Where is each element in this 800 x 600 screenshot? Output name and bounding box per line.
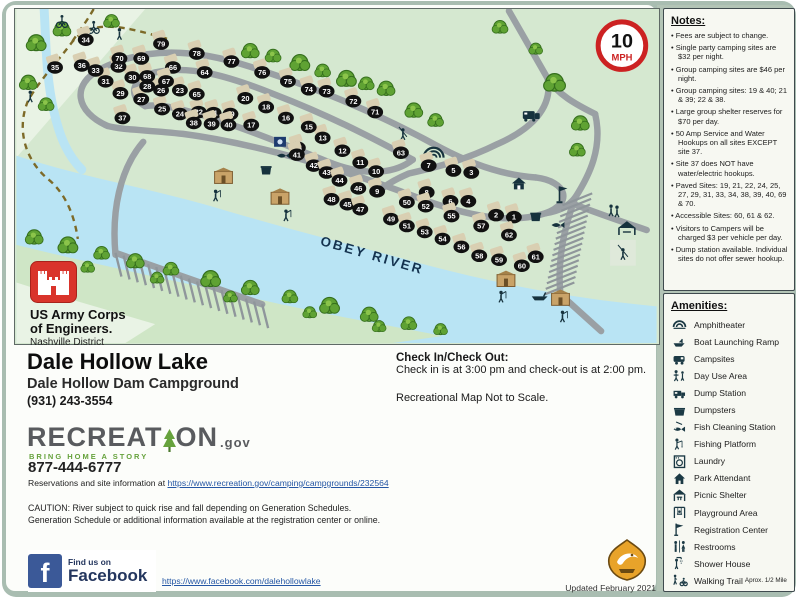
note-item: • Paved Sites: 19, 21, 22, 24, 25, 27, 2… [671, 181, 788, 209]
speed-limit-sign: 10MPH [598, 22, 646, 70]
svg-text:28: 28 [143, 82, 151, 91]
svg-text:64: 64 [201, 68, 210, 77]
dumpster-map-icon [261, 166, 272, 174]
svg-text:62: 62 [505, 231, 513, 240]
note-item: • Visitors to Campers will be charged $3… [671, 224, 788, 242]
amenity-label: Park Attendant [694, 473, 750, 483]
amenity-suffix: Aprox. 1/2 Mile [745, 577, 787, 584]
amenity-label: Fishing Platform [694, 439, 756, 449]
svg-text:9: 9 [375, 187, 379, 196]
svg-text:51: 51 [403, 222, 411, 231]
svg-text:75: 75 [284, 77, 292, 86]
svg-text:33: 33 [92, 66, 100, 75]
walking-trail-icon [671, 572, 688, 589]
facebook-icon: f [28, 554, 62, 588]
svg-text:31: 31 [101, 77, 109, 86]
amenity-row: Fish Cleaning Station [671, 419, 788, 436]
updated-date: Updated February 2021 [556, 583, 656, 593]
amenity-label: Registration Center [694, 525, 768, 535]
note-item: • Group camping sites are $46 per night. [671, 65, 788, 83]
usace-district: Nashville District [30, 337, 104, 348]
caution-text: CAUTION: River subject to quick rise and… [28, 502, 380, 526]
day-use-icon [671, 367, 688, 384]
playbox-map-icon [610, 240, 636, 266]
note-item: • Site 37 does NOT have water/electric h… [671, 159, 788, 177]
svg-text:11: 11 [356, 158, 364, 167]
svg-text:49: 49 [387, 215, 395, 224]
amenity-row: Amphitheater [671, 316, 788, 333]
checkin-title: Check In/Check Out: [396, 352, 646, 364]
amenity-row: Park Attendant [671, 470, 788, 487]
amenity-row: Dumpsters [671, 401, 788, 418]
amenity-label: Day Use Area [694, 371, 747, 381]
map-canvas: 1234567891011121314151617181920212223242… [15, 9, 658, 343]
svg-text:53: 53 [421, 228, 429, 237]
svg-text:70: 70 [115, 54, 123, 63]
svg-text:52: 52 [422, 202, 430, 211]
caution-line2: Generation Schedule or additional inform… [28, 514, 380, 526]
dumpsters-icon [671, 402, 688, 419]
amenities-list: AmphitheaterBoat Launching RampCampsites… [671, 316, 788, 590]
svg-text:23: 23 [176, 86, 184, 95]
svg-text:67: 67 [162, 77, 170, 86]
recreation-logo-tld: .gov [220, 435, 251, 453]
amenity-label: Playground Area [694, 508, 758, 518]
svg-text:2: 2 [494, 211, 498, 220]
amenity-row: Walking TrailAprox. 1/2 Mile [671, 572, 788, 589]
usace-name: US Army Corps of Engineers. [30, 308, 126, 336]
amenity-row: Laundry [671, 453, 788, 470]
amenity-label: Walking Trail [694, 576, 743, 586]
svg-text:60: 60 [518, 261, 526, 270]
amenity-label: Campsites [694, 354, 735, 364]
recreation-gov-logo: RECREATON.gov [27, 422, 251, 453]
playground-icon [671, 504, 688, 521]
amenity-label: Boat Launching Ramp [694, 337, 779, 347]
fishing-platform-icon [671, 436, 688, 453]
amenity-row: Boat Launching Ramp [671, 333, 788, 350]
svg-text:76: 76 [258, 68, 266, 77]
facebook-name-text: Facebook [68, 567, 147, 584]
fish-cleaning-icon [671, 419, 688, 436]
svg-text:29: 29 [116, 89, 124, 98]
dumpster-map-icon [530, 213, 541, 221]
amenity-row: Restrooms [671, 538, 788, 555]
facebook-badge[interactable]: f Find us on Facebook [28, 550, 156, 592]
restrooms-icon [671, 538, 688, 555]
park-attendant-icon [671, 470, 688, 487]
svg-text:12: 12 [338, 146, 346, 155]
svg-text:48: 48 [327, 195, 335, 204]
svg-text:66: 66 [169, 63, 177, 72]
note-item: • Single party camping sites are $32 per… [671, 43, 788, 61]
map-scale-note: Recreational Map Not to Scale. [396, 392, 646, 404]
amenity-row: Picnic Shelter [671, 487, 788, 504]
usace-castle-logo [30, 261, 77, 303]
registration-icon [671, 521, 688, 538]
notes-list: • Fees are subject to change.• Single pa… [671, 31, 788, 263]
laundry-icon [671, 453, 688, 470]
reservation-info-prefix: Reservations and site information at [28, 478, 167, 488]
svg-text:30: 30 [128, 73, 136, 82]
amenity-label: Laundry [694, 456, 725, 466]
amenity-label: Fish Cleaning Station [694, 422, 776, 432]
svg-text:63: 63 [397, 148, 405, 157]
svg-text:1: 1 [512, 213, 516, 222]
checkin-body: Check in is at 3:00 pm and check-out is … [396, 364, 646, 376]
amenity-row: Dump Station [671, 384, 788, 401]
note-item: • Accessible Sites: 60, 61 & 62. [671, 211, 788, 220]
caution-line1: CAUTION: River subject to quick rise and… [28, 502, 380, 514]
amenity-row: Shower House [671, 555, 788, 572]
amenity-row: Fishing Platform [671, 436, 788, 453]
svg-text:44: 44 [335, 176, 344, 185]
checkin-block: Check In/Check Out: Check in is at 3:00 … [396, 352, 646, 404]
svg-text:68: 68 [143, 72, 151, 81]
campground-map: 1234567891011121314151617181920212223242… [14, 8, 660, 345]
svg-text:73: 73 [322, 87, 330, 96]
svg-text:61: 61 [532, 252, 540, 261]
svg-text:57: 57 [477, 222, 485, 231]
amenity-row: Registration Center [671, 521, 788, 538]
campground-subtitle: Dale Hollow Dam Campground [27, 376, 239, 392]
svg-text:17: 17 [247, 121, 255, 130]
svg-text:25: 25 [158, 105, 166, 114]
amphitheater-icon [671, 316, 688, 333]
svg-text:78: 78 [193, 49, 201, 58]
svg-text:10: 10 [372, 167, 380, 176]
recreation-link[interactable]: https://www.recreation.gov/camping/campg… [167, 478, 388, 488]
svg-text:36: 36 [78, 61, 86, 70]
shower-house-icon [671, 555, 688, 572]
svg-text:41: 41 [293, 150, 301, 159]
svg-text:27: 27 [137, 95, 145, 104]
campsites-icon [671, 350, 688, 367]
svg-text:3: 3 [469, 168, 473, 177]
svg-text:50: 50 [403, 198, 411, 207]
svg-text:47: 47 [356, 205, 364, 214]
recreation-logo-text-a: RECREAT [27, 422, 163, 453]
laundry-map-icon [274, 137, 286, 147]
note-item: • 50 Amp Service and Water Hookups on al… [671, 129, 788, 157]
svg-text:15: 15 [305, 123, 313, 132]
reservation-info: Reservations and site information at htt… [28, 478, 389, 488]
svg-text:79: 79 [157, 39, 165, 48]
svg-text:7: 7 [427, 161, 431, 170]
svg-text:65: 65 [193, 90, 201, 99]
page-title: Dale Hollow Lake [27, 349, 208, 375]
svg-text:43: 43 [322, 168, 330, 177]
svg-text:10: 10 [611, 31, 633, 53]
amenities-panel: Amenities: AmphitheaterBoat Launching Ra… [663, 293, 795, 592]
svg-text:16: 16 [282, 114, 290, 123]
svg-text:55: 55 [447, 212, 455, 221]
campground-phone: (931) 243-3554 [27, 394, 112, 408]
svg-text:39: 39 [207, 120, 215, 129]
note-item: • Fees are subject to change. [671, 31, 788, 40]
svg-text:18: 18 [262, 103, 270, 112]
svg-text:20: 20 [241, 94, 249, 103]
pine-tree-icon [163, 429, 176, 453]
usace-line1: US Army Corps [30, 308, 126, 322]
dump-station-icon [671, 384, 688, 401]
notes-panel: Notes: • Fees are subject to change.• Si… [663, 8, 795, 291]
amenity-label: Amphitheater [694, 320, 745, 330]
recreation-logo-text-b: ON [176, 422, 219, 453]
reservation-phone: 877-444-6777 [28, 459, 121, 476]
boat-ramp-icon [671, 333, 688, 350]
svg-text:59: 59 [495, 255, 503, 264]
svg-text:13: 13 [318, 133, 326, 142]
svg-text:24: 24 [176, 110, 185, 119]
note-item: • Large group shelter reserves for $70 p… [671, 107, 788, 125]
amenity-label: Picnic Shelter [694, 490, 747, 500]
svg-text:34: 34 [82, 35, 91, 44]
svg-text:45: 45 [343, 200, 351, 209]
amenity-row: Playground Area [671, 504, 788, 521]
svg-text:38: 38 [190, 119, 198, 128]
notes-title: Notes: [671, 15, 788, 27]
page: 1234567891011121314151617181920212223242… [0, 0, 800, 600]
note-item: • Group camping sites: 19 & 40; 21 & 39;… [671, 86, 788, 104]
picnic-shelter-icon [671, 487, 688, 504]
amenity-label: Dumpsters [694, 405, 736, 415]
eagle-badge [607, 538, 647, 582]
svg-text:40: 40 [224, 121, 232, 130]
svg-text:37: 37 [118, 114, 126, 123]
note-item: • Dump station available. Individual sit… [671, 245, 788, 263]
svg-text:77: 77 [227, 57, 235, 66]
svg-text:5: 5 [451, 166, 455, 175]
amenity-row: Campsites [671, 350, 788, 367]
svg-text:MPH: MPH [611, 52, 632, 63]
usace-line2: of Engineers. [30, 322, 126, 336]
svg-text:58: 58 [475, 251, 483, 260]
amenities-title: Amenities: [671, 300, 788, 312]
svg-text:71: 71 [371, 108, 379, 117]
svg-text:42: 42 [310, 161, 318, 170]
svg-text:72: 72 [349, 97, 357, 106]
svg-text:69: 69 [137, 54, 145, 63]
svg-text:46: 46 [354, 184, 362, 193]
facebook-link[interactable]: https://www.facebook.com/dalehollowlake [162, 576, 321, 586]
svg-text:54: 54 [438, 235, 447, 244]
amenity-row: Day Use Area [671, 367, 788, 384]
amenity-label: Restrooms [694, 542, 736, 552]
svg-text:35: 35 [51, 63, 59, 72]
amenity-label: Shower House [694, 559, 750, 569]
svg-text:56: 56 [457, 242, 465, 251]
amenity-label: Dump Station [694, 388, 746, 398]
svg-text:74: 74 [305, 85, 314, 94]
